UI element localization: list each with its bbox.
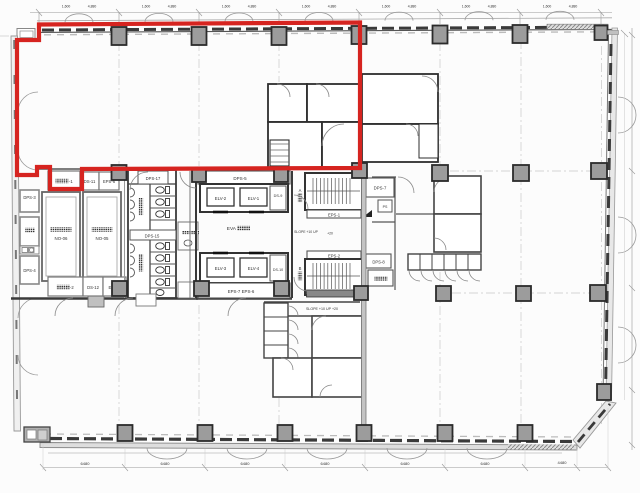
svg-text:1,600: 1,600: [302, 5, 311, 9]
svg-text:DS-12: DS-12: [87, 285, 100, 290]
svg-text:SLOPE +10 UP: SLOPE +10 UP: [294, 230, 318, 234]
svg-text:1,600: 1,600: [382, 5, 391, 9]
svg-text:6480: 6480: [241, 461, 251, 466]
svg-text:1,600: 1,600: [462, 5, 471, 9]
svg-text:EVA: EVA: [227, 226, 237, 232]
svg-text:4,880: 4,880: [168, 5, 177, 9]
svg-text:DPS-17: DPS-17: [146, 176, 161, 181]
svg-text:4,880: 4,880: [408, 5, 417, 9]
svg-text:ELV-1: ELV-1: [248, 196, 260, 201]
svg-text:DPS-7: DPS-7: [374, 186, 387, 191]
svg-text:DS-9: DS-9: [274, 194, 283, 198]
svg-text:PS: PS: [383, 205, 388, 209]
svg-text:ELV-2: ELV-2: [215, 196, 227, 201]
svg-text:SLOPE +10 UP +20: SLOPE +10 UP +20: [306, 307, 338, 311]
svg-text:EPS-1: EPS-1: [328, 213, 341, 218]
svg-text:4480: 4480: [558, 460, 568, 465]
svg-text:1,600: 1,600: [142, 5, 151, 9]
svg-text:B: B: [299, 266, 302, 271]
svg-text:DPS-15: DPS-15: [145, 234, 160, 239]
svg-text:DPS-3: DPS-3: [23, 195, 36, 200]
svg-text:6480: 6480: [481, 461, 491, 466]
svg-text:NO-06: NO-06: [55, 236, 68, 241]
svg-text:ELV-3: ELV-3: [215, 266, 227, 271]
svg-text:+20: +20: [327, 232, 333, 236]
svg-text:4,880: 4,880: [328, 5, 337, 9]
svg-text:4,880: 4,880: [88, 5, 97, 9]
svg-text:1,600: 1,600: [222, 5, 231, 9]
svg-text:DPS-4: DPS-4: [23, 268, 36, 273]
svg-text:NO-05: NO-05: [96, 236, 109, 241]
svg-text:DPS-5: DPS-5: [233, 176, 247, 181]
svg-text:6480: 6480: [161, 461, 171, 466]
svg-text:6480: 6480: [321, 461, 331, 466]
svg-text:A: A: [299, 188, 302, 193]
svg-text:4,880: 4,880: [569, 5, 578, 9]
svg-text:4,880: 4,880: [488, 5, 497, 9]
svg-text:DPS-8: DPS-8: [372, 260, 385, 265]
svg-text:EPS-7 EPS-6: EPS-7 EPS-6: [228, 289, 255, 294]
svg-text:1,600: 1,600: [543, 5, 552, 9]
svg-text:6480: 6480: [401, 461, 411, 466]
svg-text:ELV-4: ELV-4: [248, 266, 260, 271]
svg-text:DS-10: DS-10: [273, 268, 283, 272]
svg-text:DS-11: DS-11: [84, 179, 96, 184]
svg-text:EPS-2: EPS-2: [328, 254, 341, 259]
svg-text:1,600: 1,600: [62, 5, 71, 9]
svg-text:4,880: 4,880: [248, 5, 257, 9]
svg-text:6480: 6480: [81, 461, 91, 466]
